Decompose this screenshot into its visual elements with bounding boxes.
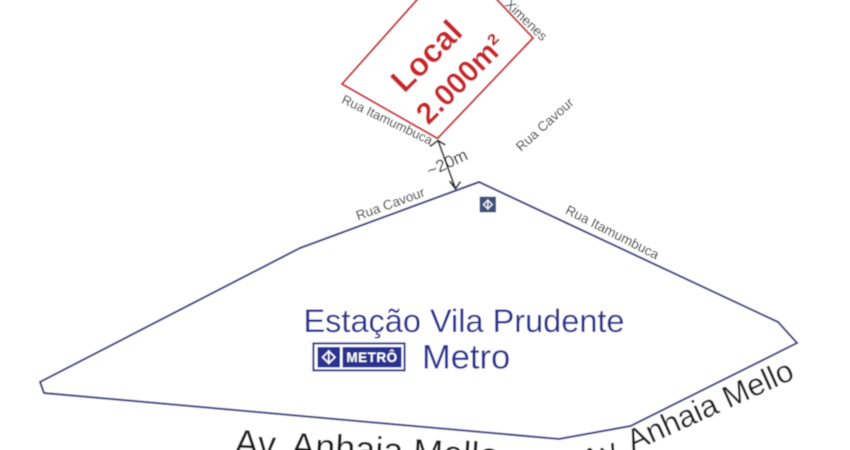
svg-text:Estação Vila Prudente: Estação Vila Prudente <box>304 303 625 339</box>
svg-text:METRÔ: METRÔ <box>346 350 397 365</box>
svg-text:Metro: Metro <box>422 339 510 377</box>
